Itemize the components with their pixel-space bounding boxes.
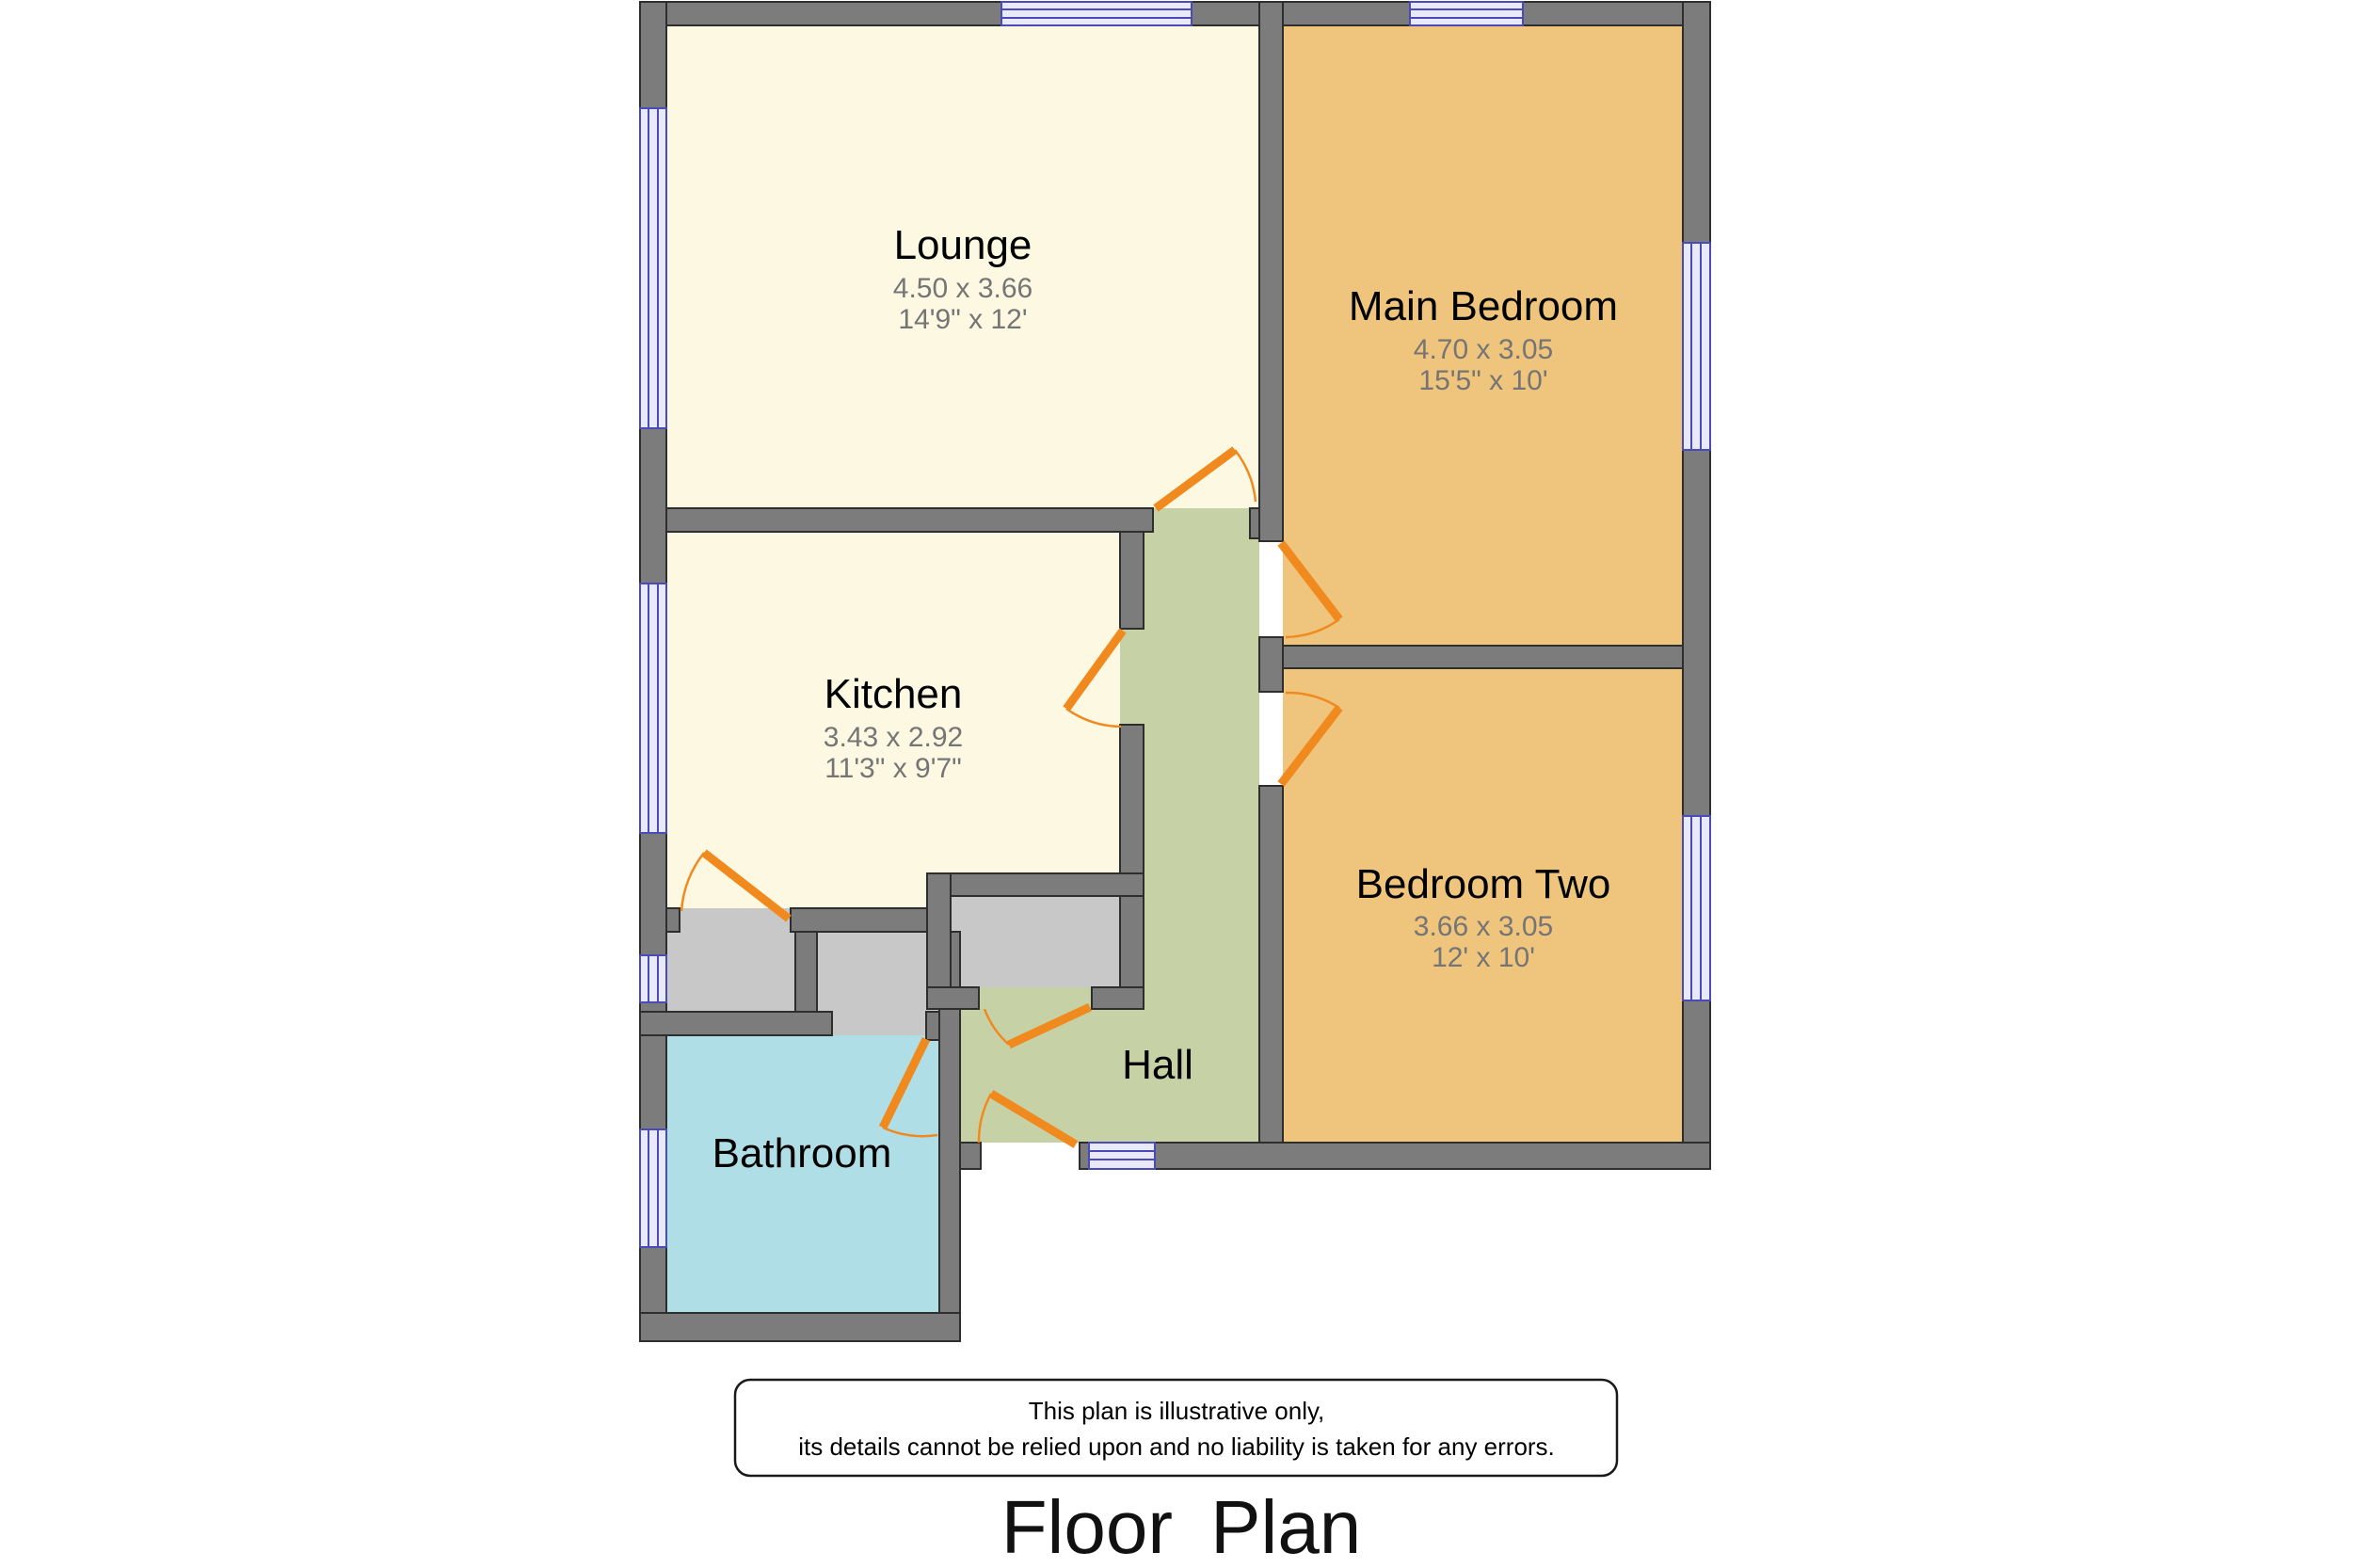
cupboard-middle-floor: [817, 932, 941, 1035]
lounge-label: Lounge: [894, 222, 1032, 268]
room-kitchen-floor: [666, 532, 1120, 908]
window-lounge-left: [640, 108, 666, 428]
bedroom-two-dims-metric: 3.66 x 3.05: [1414, 911, 1553, 942]
wall-lounge-kitchen: [666, 508, 1153, 532]
wall-bottom-outer: [1155, 1143, 1710, 1169]
wall-bathroom-bottom: [640, 1313, 960, 1341]
window-cupboard-left: [640, 955, 666, 1002]
floor-plan-svg: Lounge 4.50 x 3.66 14'9" x 12' Main Bedr…: [0, 0, 2353, 1568]
bedroom-two-dims-imperial: 12' x 10': [1432, 942, 1535, 973]
disclaimer-line2: its details cannot be relied upon and no…: [798, 1432, 1555, 1461]
wall-hall-cupboard-top: [927, 873, 1144, 896]
page-title: Floor Plan: [1001, 1485, 1362, 1568]
disclaimer-line1: This plan is illustrative only,: [1029, 1397, 1325, 1425]
room-hall-kitchen-doorway-floor: [1120, 629, 1144, 725]
cupboard-hall-floor: [951, 896, 1120, 987]
wall-front-door-right-jamb: [1080, 1143, 1089, 1169]
main-bedroom-label: Main Bedroom: [1349, 283, 1618, 329]
disclaimer-box: This plan is illustrative only, its deta…: [735, 1380, 1617, 1476]
window-bedroom-two-right: [1683, 816, 1710, 1000]
wall-bedroom-two-left: [1259, 786, 1283, 1143]
main-bedroom-dims-metric: 4.70 x 3.05: [1414, 334, 1553, 365]
window-main-bedroom-right: [1683, 243, 1710, 450]
room-hall-lower-floor: [960, 987, 1144, 1143]
window-hall-bottom: [1089, 1143, 1155, 1169]
disclaimer-border: [735, 1380, 1617, 1476]
window-kitchen-left: [640, 584, 666, 833]
window-bathroom-left: [640, 1129, 666, 1247]
wall-bathroom-top: [640, 1012, 832, 1035]
wall-bedroom-door-mullion: [1259, 637, 1283, 692]
wall-kitchen-right-upper: [1120, 532, 1144, 629]
wall-bedrooms-divider: [1283, 646, 1683, 668]
wall-kitchen-bottom-stub: [666, 908, 680, 932]
lounge-dims-imperial: 14'9" x 12': [898, 304, 1027, 335]
lounge-dims-metric: 4.50 x 3.66: [893, 273, 1032, 304]
kitchen-dims-metric: 3.43 x 2.92: [824, 722, 963, 753]
wall-hall-cupboard-bottom-left: [927, 987, 979, 1009]
floor-plan-page: Lounge 4.50 x 3.66 14'9" x 12' Main Bedr…: [0, 0, 2353, 1568]
wall-hall-cupboard-bottom-right: [1092, 987, 1144, 1009]
kitchen-dims-imperial: 11'3" x 9'7": [824, 753, 962, 784]
bathroom-label: Bathroom: [712, 1130, 892, 1176]
wall-front-door-left-jamb: [960, 1143, 981, 1169]
bedroom-two-label: Bedroom Two: [1356, 861, 1611, 907]
wall-main-bedroom-left: [1259, 2, 1283, 541]
hall-label: Hall: [1122, 1042, 1193, 1088]
main-bedroom-dims-imperial: 15'5" x 10': [1418, 365, 1547, 396]
cupboard-left-floor: [666, 908, 795, 1012]
wall-kitchen-right-lower: [1120, 725, 1144, 1009]
window-main-bedroom-top: [1410, 2, 1523, 25]
kitchen-label: Kitchen: [824, 671, 963, 717]
window-lounge-top: [1001, 2, 1192, 25]
